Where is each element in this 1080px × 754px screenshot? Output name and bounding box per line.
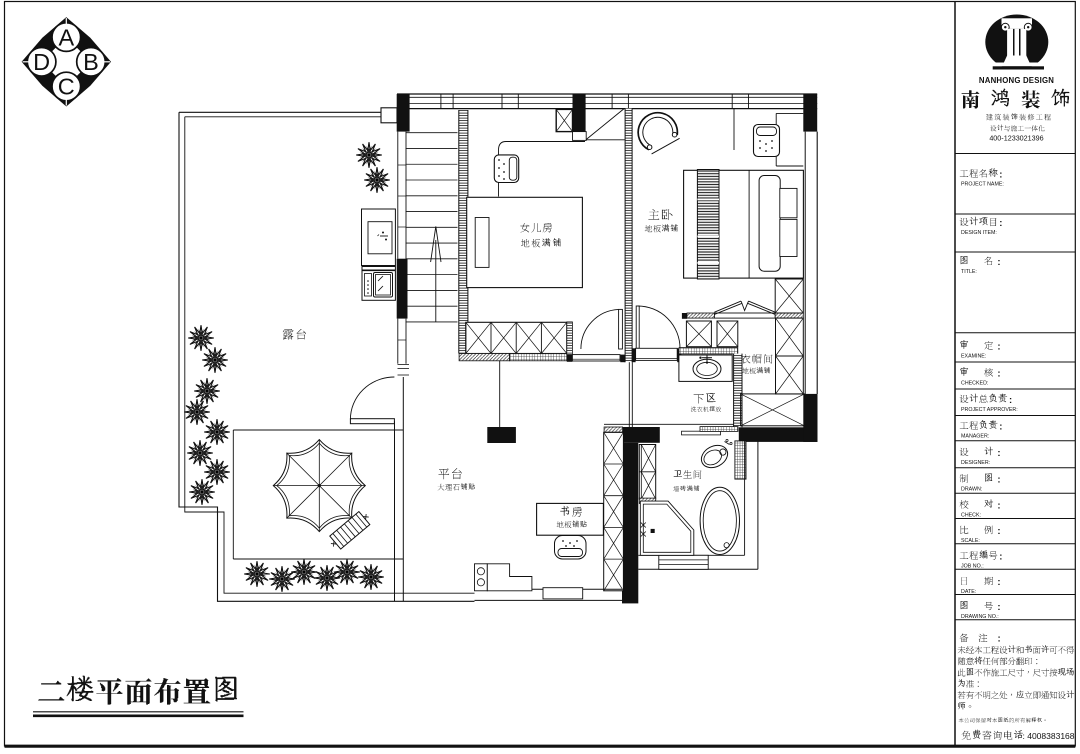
svg-text:CHECK:: CHECK: [961, 513, 981, 519]
svg-text:CHECKED:: CHECKED: [961, 381, 988, 387]
svg-text:PROJECT NAME:: PROJECT NAME: [961, 182, 1004, 188]
svg-text:B: B [83, 49, 99, 75]
svg-text::: : [997, 526, 1000, 537]
svg-text:DATE:: DATE: [961, 589, 976, 595]
svg-text:D: D [33, 49, 50, 75]
svg-text:NANHONG DESIGN: NANHONG DESIGN [979, 76, 1054, 85]
svg-text::: : [997, 500, 1000, 511]
svg-text::: : [997, 602, 1000, 613]
svg-text::: : [999, 421, 1002, 432]
svg-text:DRAWING NO.:: DRAWING NO.: [961, 614, 999, 620]
svg-text:C: C [58, 74, 75, 100]
svg-text:A: A [58, 24, 74, 50]
svg-text:DESIGN ITEM:: DESIGN ITEM: [961, 230, 997, 236]
svg-text::: : [997, 257, 1000, 268]
svg-text:: 4008383168: : 4008383168 [1023, 731, 1075, 741]
svg-text::: : [997, 368, 1000, 379]
svg-text:JOB NO.:: JOB NO.: [961, 564, 984, 570]
svg-text:PROJECT APPROVER:: PROJECT APPROVER: [961, 407, 1018, 413]
svg-text:DESIGNER:: DESIGNER: [961, 460, 990, 466]
svg-text:TITLE:: TITLE: [961, 269, 977, 275]
svg-text:400-1233021396: 400-1233021396 [989, 134, 1043, 143]
svg-text:MANAGER:: MANAGER: [961, 434, 989, 440]
svg-text::: : [999, 169, 1002, 180]
svg-text:SCALE:: SCALE: [961, 538, 980, 544]
svg-text:DRAWN:: DRAWN: [961, 487, 982, 493]
svg-text::: : [998, 634, 1001, 645]
svg-text::: : [999, 551, 1002, 562]
svg-text:EXAMINE:: EXAMINE: [961, 354, 986, 360]
svg-text::: : [997, 448, 1000, 459]
svg-text::: : [1009, 395, 1012, 406]
svg-text::: : [999, 218, 1002, 229]
svg-text::: : [997, 474, 1000, 485]
svg-text::: : [997, 341, 1000, 352]
svg-text::: : [997, 577, 1000, 588]
